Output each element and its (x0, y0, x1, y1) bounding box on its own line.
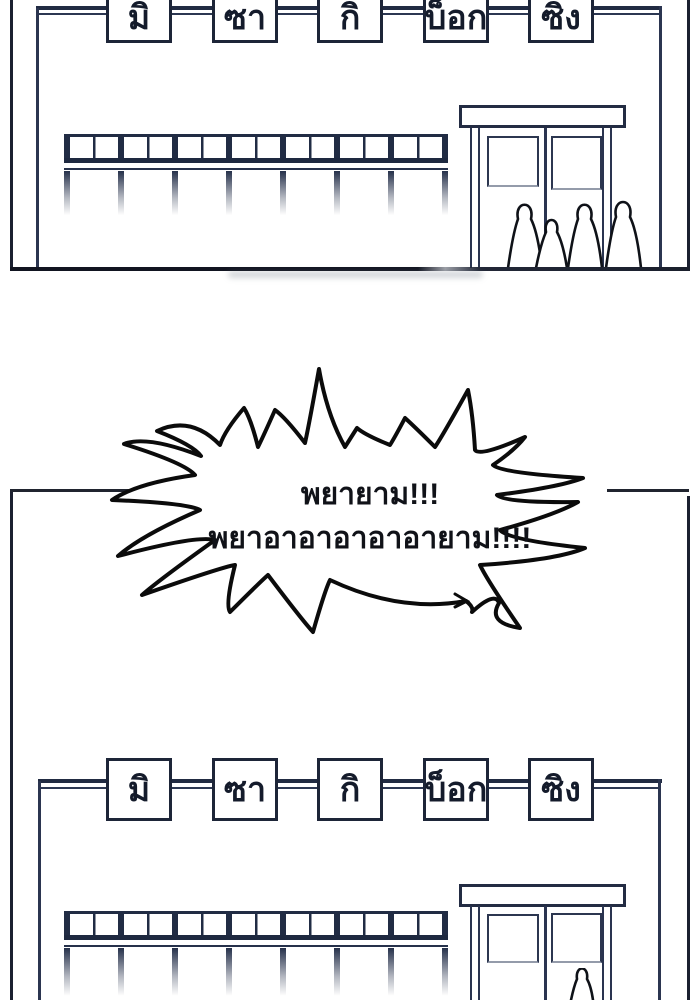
door-window-right (551, 913, 602, 963)
building-left-edge (36, 8, 39, 268)
sign-board: ซิง (528, 758, 594, 821)
building-right-edge (659, 6, 662, 268)
panel-border-top (607, 489, 689, 492)
sign-board: ซา (212, 0, 278, 43)
shout-text-line2: พยาอาอาอาอาอายาม!!!! (168, 517, 572, 561)
sign-board: กิ (317, 758, 383, 821)
window-band-posts (64, 948, 448, 1000)
sign-board: มิ (106, 758, 172, 821)
panel-border-right (687, 0, 690, 270)
panel-border-left (10, 0, 13, 270)
sign-text: กิ (340, 1, 361, 35)
sign-text: ซิง (541, 773, 581, 807)
sign-board: กิ (317, 0, 383, 43)
sign-board: บ็อก (423, 0, 489, 43)
building-left-edge (38, 781, 41, 1000)
sign-text: มิ (128, 1, 150, 35)
comic-page: มิ ซา กิ บ็อก ซิง (0, 0, 700, 1000)
door-post-left (470, 128, 480, 268)
crowd-silhouettes (505, 186, 650, 268)
window-band (64, 911, 448, 940)
building-right-edge (658, 779, 661, 1000)
panel-border-right (687, 496, 690, 1000)
window-band (64, 134, 448, 163)
window-band-sill (64, 168, 448, 170)
sign-board: ซา (212, 758, 278, 821)
door-post-left (470, 906, 480, 1000)
door-window-left (487, 136, 539, 187)
sign-board: ซิง (528, 0, 594, 43)
door-post-middle (544, 906, 547, 1000)
sign-text: บ็อก (425, 773, 488, 807)
ink-smudge (228, 271, 483, 278)
entrance-canopy (459, 884, 626, 907)
sign-text: กิ (340, 773, 361, 807)
shout-text: พยายาม!!! พยาอาอาอาอาอายาม!!!! (168, 473, 572, 561)
door-window-left (487, 914, 539, 963)
person-silhouette-partial (565, 968, 610, 1000)
shout-text-line1: พยายาม!!! (168, 473, 572, 517)
window-band-sill (64, 945, 448, 947)
sign-board: มิ (106, 0, 172, 43)
sign-text: ซา (224, 1, 266, 35)
sign-text: ซา (224, 773, 266, 807)
sign-board: บ็อก (423, 758, 489, 821)
sign-text: ซิง (541, 1, 581, 35)
panel-border-left (10, 490, 13, 1000)
window-band-posts (64, 171, 448, 219)
sign-text: มิ (128, 773, 150, 807)
sign-text: บ็อก (425, 1, 488, 35)
entrance-canopy (459, 105, 626, 128)
door-window-right (551, 136, 602, 190)
